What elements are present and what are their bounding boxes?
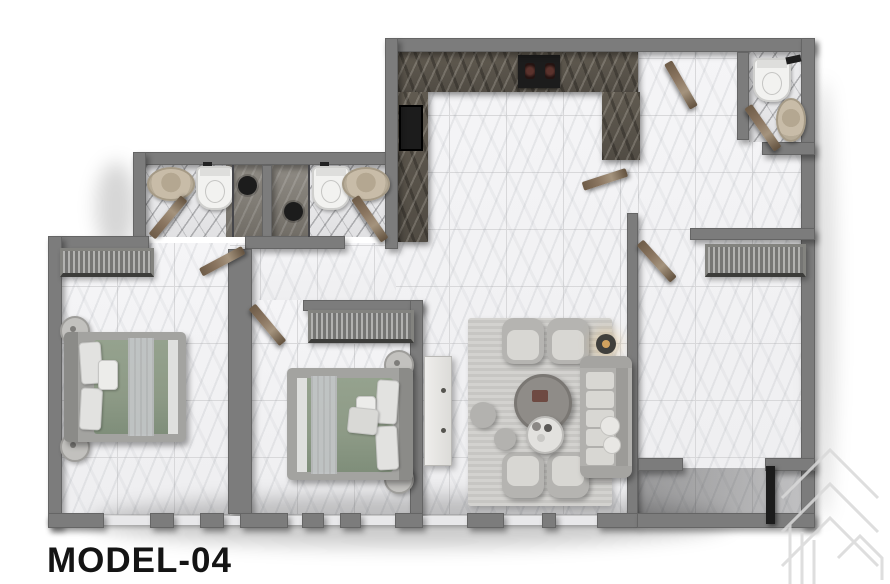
bedroom3-wardrobe xyxy=(705,244,806,277)
wall-hallway-south xyxy=(245,236,345,249)
window-pier xyxy=(542,513,556,528)
window-pier xyxy=(395,513,423,528)
bedroom1-throw-blanket xyxy=(128,338,154,436)
bedroom1-accent-pillow xyxy=(98,360,118,390)
wall-bedroom3-top xyxy=(690,228,815,240)
sofa-cushion xyxy=(586,372,614,389)
pouf xyxy=(470,402,496,428)
bathroom1-toilet xyxy=(196,166,234,210)
wall-bathroom3-left xyxy=(737,52,749,140)
window-pier xyxy=(597,513,638,528)
bedroom2-headboard xyxy=(399,368,413,480)
bathroom1-shower-head-icon xyxy=(238,176,257,195)
window-pier xyxy=(48,513,104,528)
window-pier xyxy=(467,513,504,528)
bathroom1-shower-divider xyxy=(232,165,234,237)
bedroom1-pillow xyxy=(79,387,103,430)
bedroom2-square-pillow xyxy=(347,407,380,436)
wall-bathroom-block-left xyxy=(133,152,146,249)
bathroom2-flush-plate-icon xyxy=(320,162,329,166)
bedroom2-duvet-fold xyxy=(297,378,307,472)
wall-bathroom-block-top xyxy=(133,152,392,165)
sofa-cushion xyxy=(586,391,614,408)
coffee-table-tray-icon xyxy=(532,390,548,402)
bedroom2-dresser xyxy=(424,356,452,466)
sofa-armrest xyxy=(580,466,632,478)
bedroom1-headboard xyxy=(64,332,78,442)
table-decor-icon xyxy=(544,424,552,432)
dresser-knob-icon xyxy=(441,388,446,393)
floor-plan-render: MODEL-04 xyxy=(0,0,890,584)
bedroom2-pillow xyxy=(375,425,399,470)
wall-top-main xyxy=(385,38,815,52)
cooktop-burner-icon xyxy=(545,63,555,79)
table-decor-icon xyxy=(532,422,541,431)
sofa-pillow xyxy=(603,436,621,454)
plan-title: MODEL-04 xyxy=(47,541,232,581)
sofa-backrest xyxy=(616,362,628,472)
bathroom2-shower-head-icon xyxy=(284,202,303,221)
coffee-table-small xyxy=(526,416,564,454)
table-decor-icon xyxy=(537,434,545,442)
bathroom2-shower-divider xyxy=(308,165,310,237)
window-pier xyxy=(340,513,361,528)
bathroom1-flush-plate-icon xyxy=(203,162,212,166)
window-pier xyxy=(150,513,174,528)
bedroom1-duvet-fold xyxy=(168,340,178,434)
bedroom2-throw-blanket xyxy=(311,376,337,474)
sofa-pillow xyxy=(600,416,620,436)
developer-watermark-logo xyxy=(768,428,890,584)
cooktop-burner-icon xyxy=(525,63,535,79)
armchair xyxy=(502,318,544,364)
bathroom2-shower-floor xyxy=(272,165,310,237)
pouf xyxy=(494,428,516,450)
window-pier xyxy=(200,513,224,528)
bedroom1-wardrobe xyxy=(60,248,154,277)
kitchen-sink-unit xyxy=(399,105,423,151)
bedroom2-wardrobe xyxy=(308,310,414,343)
bathroom3-toilet xyxy=(753,58,791,102)
bathroom1-sink xyxy=(147,167,195,201)
sofa-armrest xyxy=(580,356,632,368)
dresser-knob-icon xyxy=(441,428,446,433)
wall-entry-stub-left xyxy=(638,458,683,471)
wall-left-outer xyxy=(48,236,62,528)
floor-lamp-bulb xyxy=(602,340,610,348)
wall-bedroom1-bedroom2 xyxy=(228,249,252,514)
armchair xyxy=(502,452,544,498)
kitchen-counter-right xyxy=(602,92,640,160)
wall-kitchen-left xyxy=(385,38,398,249)
bathroom3-sink xyxy=(776,98,806,142)
window-pier xyxy=(240,513,288,528)
bathroom2-sink xyxy=(342,167,390,201)
window-pier xyxy=(302,513,324,528)
wall-between-bathrooms xyxy=(262,165,272,237)
